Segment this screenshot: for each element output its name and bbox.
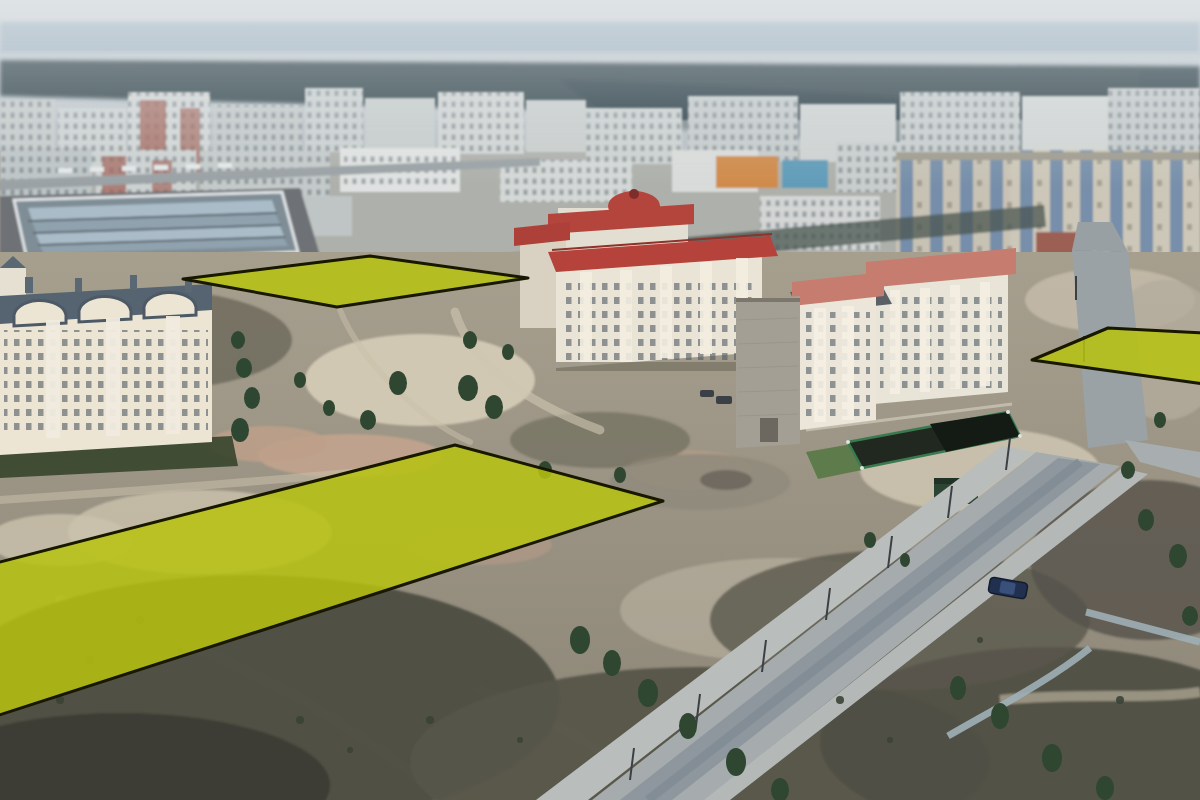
atmospheric-haze	[0, 0, 1200, 190]
aerial-photo	[0, 0, 1200, 800]
